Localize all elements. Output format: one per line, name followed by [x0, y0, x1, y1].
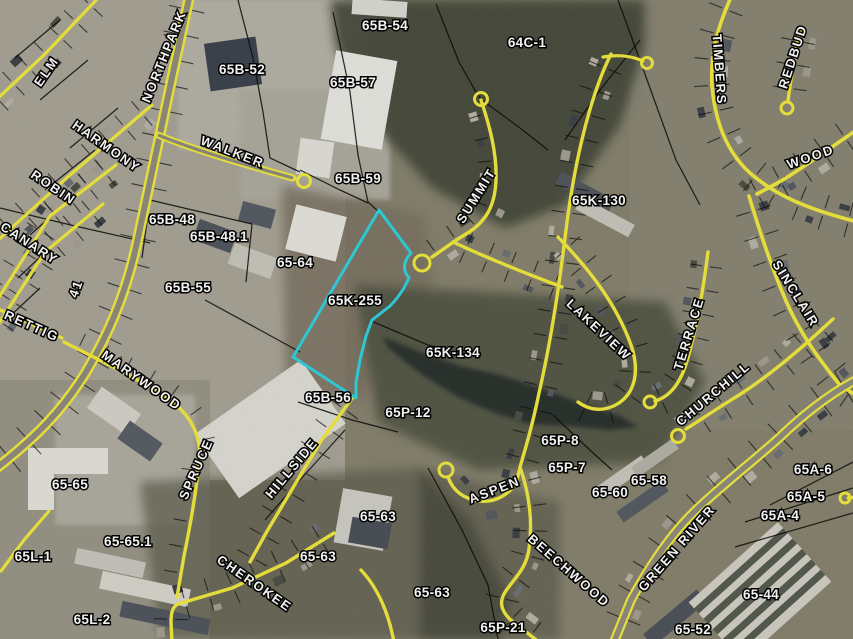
aerial-parcel-map[interactable]: 65B-5464C-165B-5265B-5765B-5965K-13065B-…: [0, 0, 853, 639]
map-viewport[interactable]: 65B-5464C-165B-5265B-5765B-5965K-13065B-…: [0, 0, 853, 639]
aerial-texture-overlay: [0, 0, 853, 639]
